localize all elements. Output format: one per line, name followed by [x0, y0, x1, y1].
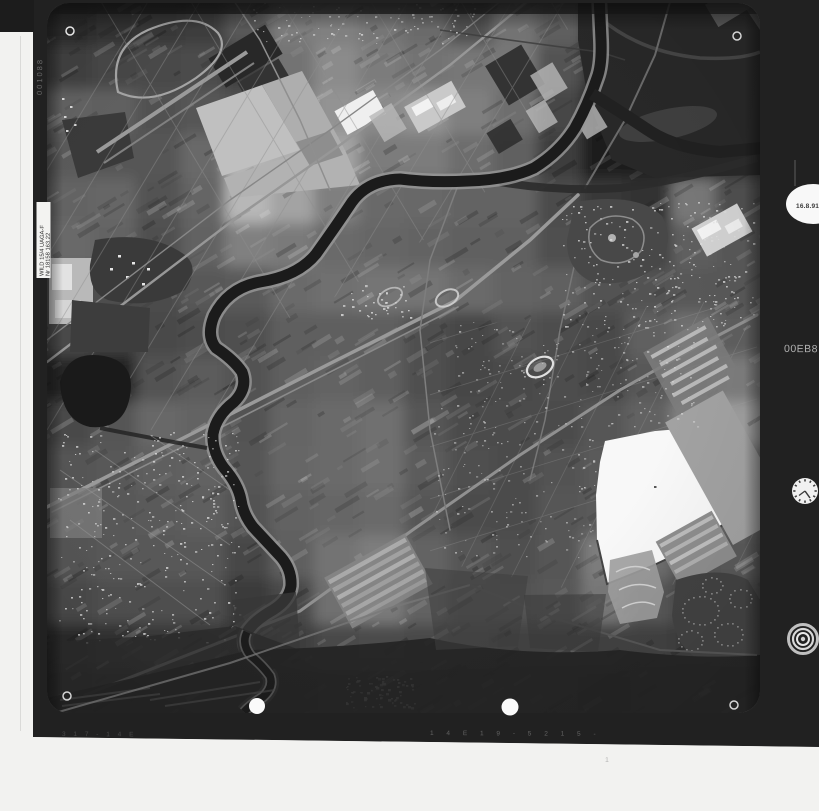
svg-text:1: 1	[605, 757, 609, 764]
svg-text:001088: 001088	[35, 58, 44, 95]
svg-text:16.8.91: 16.8.91	[796, 203, 819, 210]
svg-text:1 4 E 1 9 - 5 2 1 5 -: 1 4 E 1 9 - 5 2 1 5 -	[430, 730, 601, 738]
svg-text:Nr 18158 163.22: Nr 18158 163.22	[46, 233, 52, 276]
svg-text:00EB8: 00EB8	[784, 343, 818, 355]
svg-text:3 1 7 - 1 4 E: 3 1 7 - 1 4 E	[62, 731, 136, 738]
